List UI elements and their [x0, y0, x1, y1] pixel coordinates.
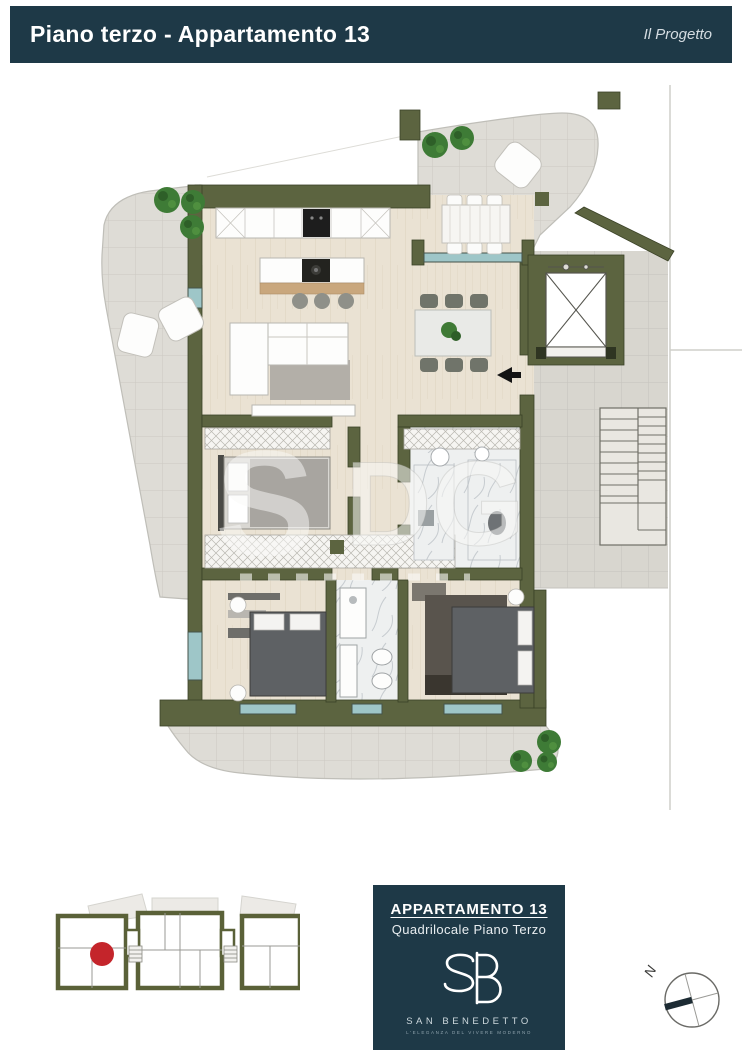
vanity — [340, 645, 357, 697]
pillow — [518, 611, 532, 645]
planter-icon — [535, 192, 549, 206]
apartment-title: APPARTAMENTO 13 — [373, 901, 565, 918]
tree-icon — [154, 187, 180, 213]
terrace-bottom — [168, 726, 558, 779]
nightstand — [230, 685, 246, 701]
sb-monogram-icon — [373, 947, 565, 1014]
nightstand — [230, 597, 246, 613]
tree-icon — [180, 215, 204, 239]
brand-tagline: l'eleganza del vivere moderno — [373, 1030, 565, 1035]
info-box: APPARTAMENTO 13 Quadrilocale Piano Terzo… — [373, 885, 565, 1050]
floor-plan: S DG — [0, 85, 742, 815]
sofa — [230, 323, 350, 400]
pillow — [290, 614, 320, 630]
compass-needle — [658, 967, 725, 1033]
shower — [340, 588, 366, 638]
north-label: N — [641, 962, 660, 979]
bedroom-3 — [412, 583, 534, 695]
key-plan-drawing — [30, 888, 300, 1008]
tv-bench — [252, 405, 355, 416]
bidet-icon — [372, 673, 392, 689]
apartment-subtitle: Quadrilocale Piano Terzo — [373, 922, 565, 937]
stool-icon — [292, 293, 308, 309]
elevator — [528, 255, 624, 365]
tree-icon — [181, 190, 205, 214]
stool-icon — [338, 293, 354, 309]
dining-table — [415, 294, 491, 372]
location-dot — [90, 942, 114, 966]
brand-name: SAN BENEDETTO — [373, 1016, 565, 1027]
outdoor-dining-table — [442, 195, 510, 254]
header-right-label: Il Progetto — [644, 26, 712, 43]
terrace-left — [102, 185, 200, 600]
watermark: S DG — [215, 419, 525, 587]
watermark-s: S — [215, 419, 315, 587]
pillow — [518, 651, 532, 685]
compass: N — [630, 950, 740, 1045]
tree-icon — [510, 750, 532, 772]
tree-icon — [450, 126, 474, 150]
pillow — [254, 614, 284, 630]
header-bar: Piano terzo - Appartamento 13 Il Progett… — [10, 6, 732, 63]
tree-icon — [537, 752, 557, 772]
nightstand — [508, 589, 524, 605]
rug — [270, 360, 350, 400]
tree-icon — [422, 132, 448, 158]
staircase — [600, 408, 666, 545]
oven-icon — [303, 209, 330, 237]
watermark-dg: DG — [345, 437, 525, 571]
tree-icon — [537, 730, 561, 754]
key-plan — [30, 888, 300, 1008]
page-title: Piano terzo - Appartamento 13 — [30, 21, 370, 48]
kitchen-counter — [216, 208, 390, 238]
stool-icon — [314, 293, 330, 309]
floor-plan-area: S DG — [0, 85, 742, 815]
toilet-icon — [372, 649, 392, 665]
